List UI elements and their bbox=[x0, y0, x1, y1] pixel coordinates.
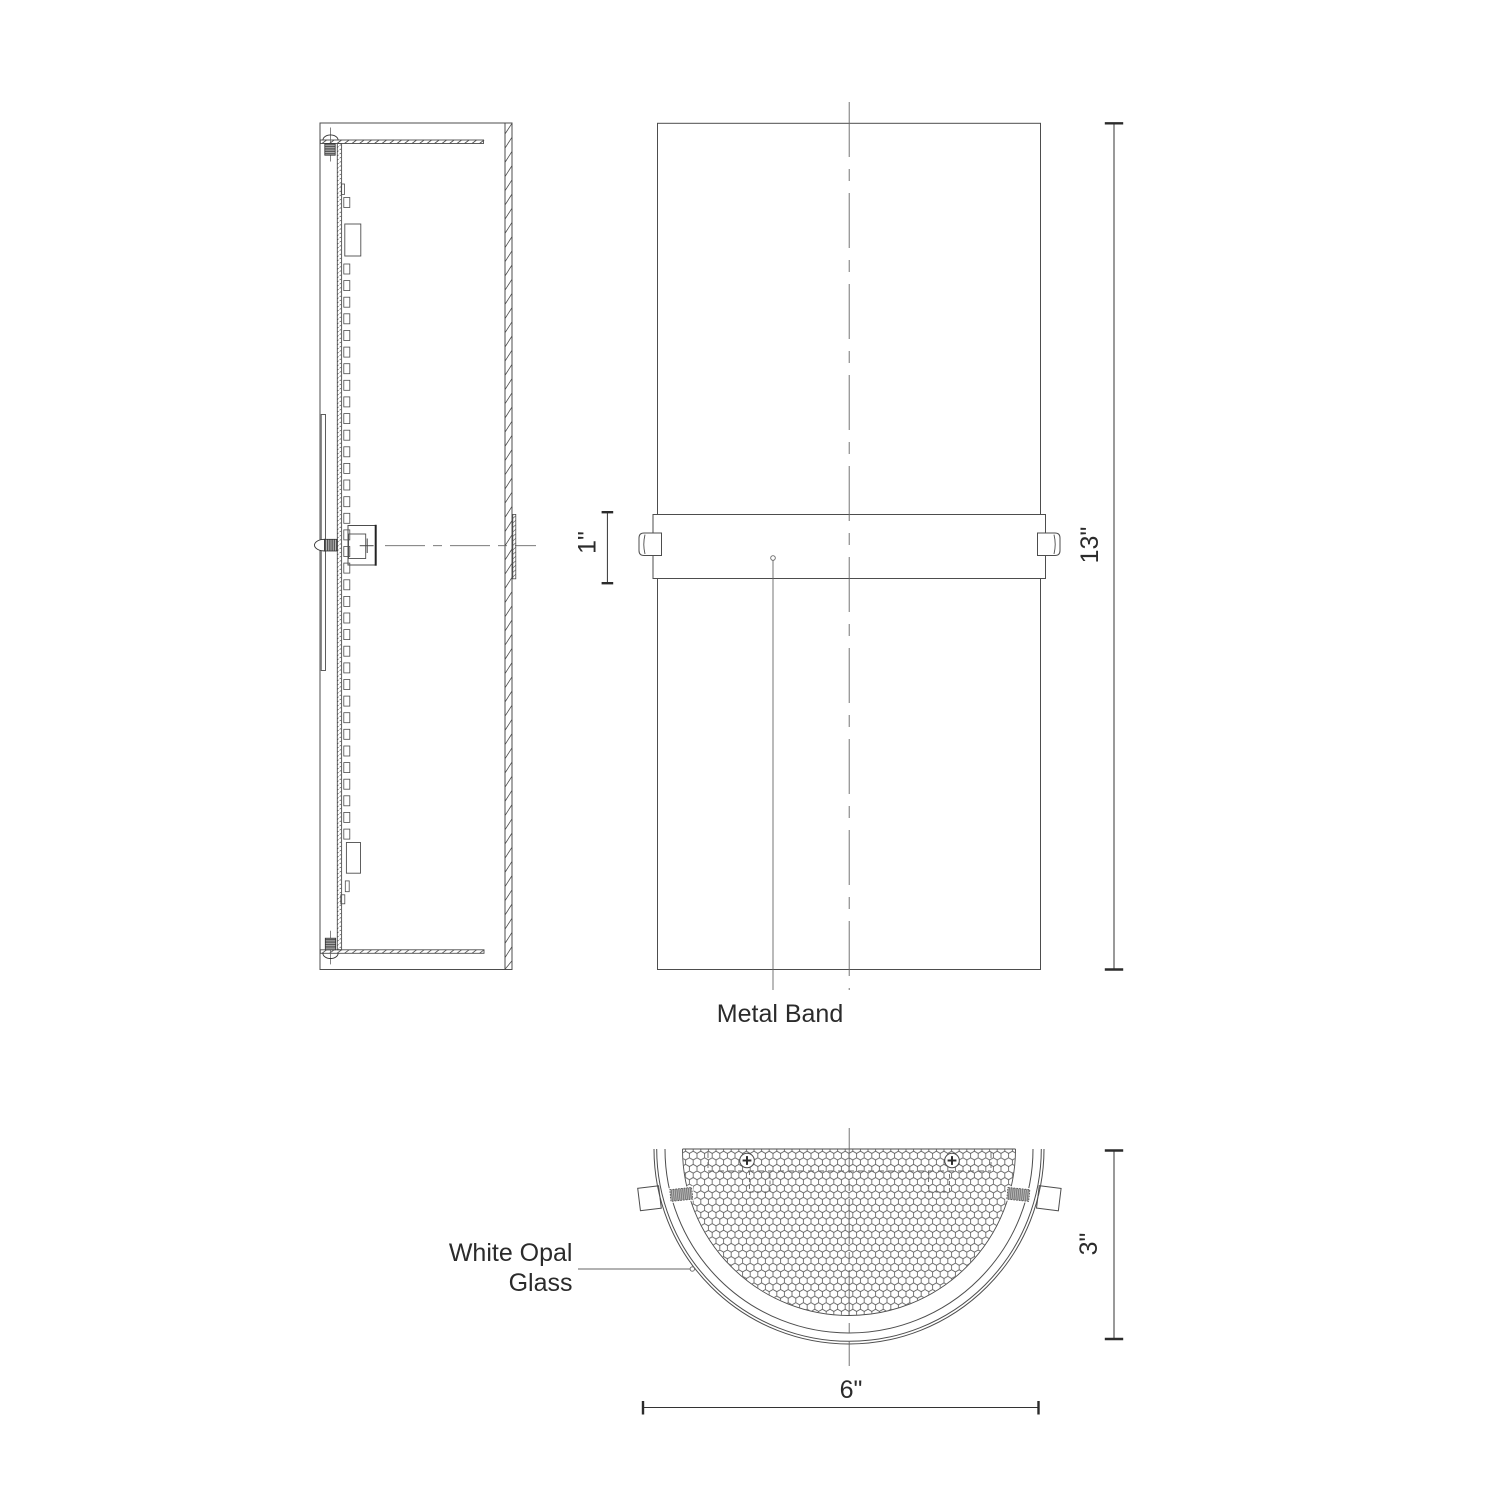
svg-text:6": 6" bbox=[840, 1376, 863, 1404]
svg-text:3": 3" bbox=[1075, 1233, 1103, 1256]
svg-text:13": 13" bbox=[1076, 527, 1104, 564]
svg-text:Glass: Glass bbox=[509, 1269, 573, 1297]
svg-text:Metal Band: Metal Band bbox=[717, 1000, 843, 1028]
svg-text:White Opal: White Opal bbox=[449, 1239, 573, 1267]
svg-text:1": 1" bbox=[574, 531, 602, 554]
